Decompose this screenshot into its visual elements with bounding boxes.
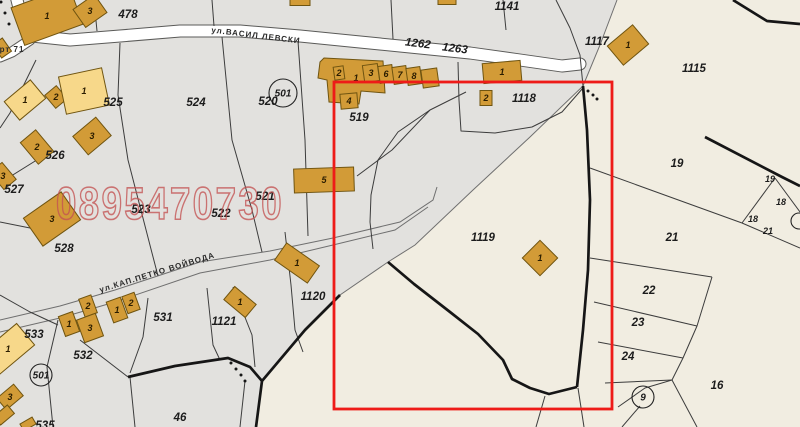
building-number: 2 bbox=[52, 92, 58, 102]
parcel-label-21: 21 bbox=[665, 232, 679, 244]
parcel-label-520: 520 bbox=[258, 96, 278, 108]
building-number: 3 bbox=[87, 6, 92, 16]
parcel-label-22: 22 bbox=[642, 285, 656, 297]
parcel-label-526: 526 bbox=[45, 150, 65, 162]
parcel-label-19: 19 bbox=[765, 174, 775, 184]
building-number: 1 bbox=[499, 67, 504, 77]
building bbox=[421, 68, 439, 88]
building-number: 1 bbox=[5, 344, 10, 354]
building-number: 3 bbox=[7, 392, 12, 402]
building-number: 1 bbox=[44, 11, 49, 21]
parcel-label-531: 531 bbox=[153, 312, 172, 324]
cadastral-map[interactable]: 1312132331321312112367841251115015019478… bbox=[0, 0, 800, 427]
building bbox=[290, 0, 310, 6]
building-number: 2 bbox=[33, 142, 39, 152]
building-number: 8 bbox=[411, 71, 416, 81]
parcel-label-1120: 1120 bbox=[301, 291, 326, 303]
parcel-label-532: 532 bbox=[73, 350, 93, 362]
parcel-label-19: 19 bbox=[671, 158, 684, 170]
parcel-label-524: 524 bbox=[186, 97, 206, 109]
parcel-label-519: 519 bbox=[349, 112, 369, 124]
building-number: 1 bbox=[294, 258, 299, 268]
parcel-label-18: 18 bbox=[776, 197, 786, 207]
parcel-label-528: 528 bbox=[54, 243, 74, 255]
building-number: 1 bbox=[114, 305, 119, 315]
building-number: 1 bbox=[237, 297, 242, 307]
dot-marker bbox=[235, 368, 238, 371]
map-container: 1312132331321312112367841251115015019478… bbox=[0, 0, 800, 427]
building-number: 3 bbox=[0, 171, 5, 181]
dot-marker bbox=[8, 23, 11, 26]
index-circle-number: 9 bbox=[640, 393, 646, 404]
building-number: 1 bbox=[22, 95, 27, 105]
parcel-label-21: 21 bbox=[762, 226, 773, 236]
parcel-label-18: 18 bbox=[748, 214, 758, 224]
building-number: 3 bbox=[368, 68, 373, 78]
parcel-label-1115: 1115 bbox=[682, 63, 706, 75]
parcel-label-46: 46 bbox=[173, 412, 187, 424]
building-number: 1 bbox=[81, 86, 86, 96]
parcel-label-533: 533 bbox=[24, 329, 44, 341]
building-number: 3 bbox=[87, 323, 92, 333]
building-number: 3 bbox=[49, 214, 54, 224]
parcel-label-1119: 1119 bbox=[471, 232, 495, 244]
parcel-label-1121: 1121 bbox=[212, 316, 237, 328]
parcel-label-23: 23 bbox=[631, 317, 645, 329]
dot-marker bbox=[592, 94, 595, 97]
parcel-label-535: 535 bbox=[35, 420, 55, 427]
dot-marker bbox=[230, 362, 233, 365]
parcel-label-478: 478 bbox=[117, 9, 138, 21]
map-viewport: 1312132331321312112367841251115015019478… bbox=[0, 0, 800, 427]
building-number: 1 bbox=[625, 40, 630, 50]
building-number: 2 bbox=[127, 298, 133, 308]
dot-marker bbox=[244, 380, 247, 383]
parcel-label-1117: 1117 bbox=[585, 36, 609, 48]
parcel-label-24: 24 bbox=[621, 351, 635, 363]
dot-marker bbox=[596, 98, 599, 101]
building-number: 3 bbox=[89, 131, 94, 141]
building bbox=[438, 0, 456, 5]
dot-marker bbox=[240, 374, 243, 377]
building-number: 1 bbox=[537, 253, 542, 263]
dot-marker bbox=[587, 90, 590, 93]
building-number: 1 bbox=[66, 319, 71, 329]
street-label: рт 71 bbox=[0, 45, 24, 54]
parcel-label-16: 16 bbox=[711, 380, 724, 392]
dot-marker bbox=[4, 12, 7, 15]
parcel-label-527: 527 bbox=[4, 184, 24, 196]
parcel-label-1118: 1118 bbox=[512, 93, 536, 105]
building-number: 2 bbox=[335, 68, 341, 78]
parcel-label-525: 525 bbox=[103, 97, 123, 109]
watermark-text: 0895470730 bbox=[56, 178, 284, 229]
building-number: 2 bbox=[482, 93, 488, 103]
building-number: 2 bbox=[84, 301, 90, 311]
building-number: 4 bbox=[345, 96, 351, 106]
index-circle-number: 501 bbox=[33, 371, 50, 382]
parcel-label-1141: 1141 bbox=[495, 1, 520, 13]
